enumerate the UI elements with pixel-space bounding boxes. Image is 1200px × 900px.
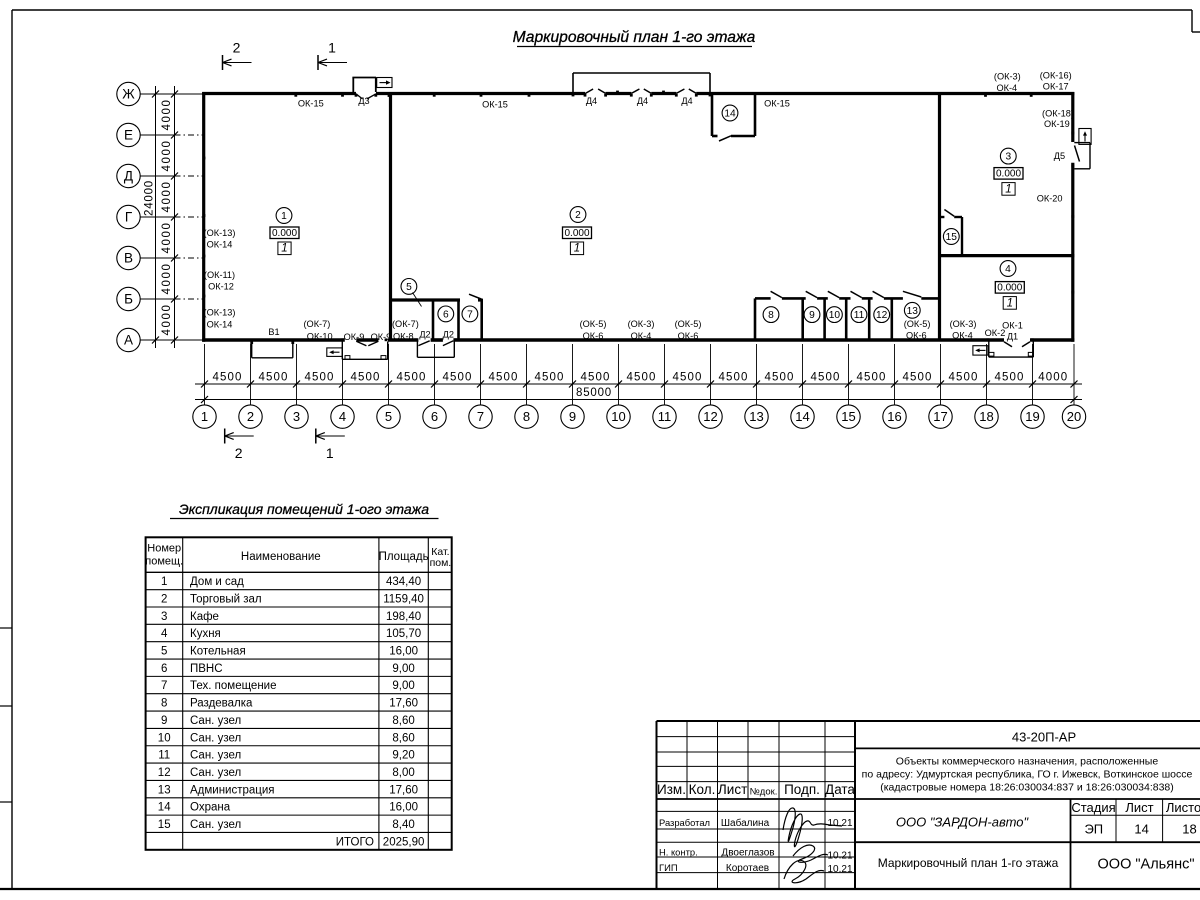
svg-text:434,40: 434,40 bbox=[386, 576, 421, 588]
svg-text:Д: Д bbox=[124, 169, 133, 184]
svg-text:4500: 4500 bbox=[903, 372, 933, 384]
svg-text:6: 6 bbox=[443, 310, 449, 321]
svg-text:(ОК-18): (ОК-18) bbox=[1042, 109, 1074, 119]
svg-text:14: 14 bbox=[1134, 821, 1148, 836]
svg-text:ОК-4: ОК-4 bbox=[952, 331, 973, 341]
svg-text:9,00: 9,00 bbox=[392, 663, 414, 675]
svg-text:ОК-15: ОК-15 bbox=[482, 100, 508, 110]
svg-text:Сан. узел: Сан. узел bbox=[190, 715, 241, 727]
svg-text:ОК-6: ОК-6 bbox=[583, 331, 604, 341]
svg-text:4: 4 bbox=[339, 409, 346, 424]
svg-text:Экспликация помещений 1-ого эт: Экспликация помещений 1-ого этажа bbox=[179, 501, 429, 517]
svg-text:14: 14 bbox=[795, 409, 809, 424]
svg-text:(ОК-16): (ОК-16) bbox=[1040, 70, 1072, 80]
svg-text:4000: 4000 bbox=[161, 99, 173, 131]
svg-text:(ОК-5): (ОК-5) bbox=[580, 319, 607, 329]
svg-text:ИТОГО: ИТОГО bbox=[336, 836, 374, 848]
svg-text:8,00: 8,00 bbox=[392, 767, 414, 779]
svg-text:Д1: Д1 bbox=[1007, 331, 1018, 341]
svg-text:16,00: 16,00 bbox=[389, 646, 418, 658]
svg-text:7: 7 bbox=[467, 310, 473, 321]
svg-text:(ОК-5): (ОК-5) bbox=[675, 319, 702, 329]
svg-text:8: 8 bbox=[768, 310, 774, 321]
svg-text:Ж: Ж bbox=[122, 87, 135, 102]
svg-text:10: 10 bbox=[611, 409, 625, 424]
svg-text:3: 3 bbox=[1005, 152, 1011, 163]
svg-text:ОК-15: ОК-15 bbox=[298, 99, 324, 109]
svg-text:3: 3 bbox=[293, 409, 300, 424]
svg-text:Сан. узел: Сан. узел bbox=[190, 732, 241, 744]
svg-text:1159,40: 1159,40 bbox=[383, 594, 424, 606]
svg-text:10: 10 bbox=[829, 310, 841, 321]
svg-text:9: 9 bbox=[569, 409, 576, 424]
svg-text:3: 3 bbox=[161, 611, 167, 623]
svg-text:14: 14 bbox=[158, 802, 171, 814]
svg-text:11: 11 bbox=[658, 409, 672, 424]
svg-text:15: 15 bbox=[841, 409, 855, 424]
svg-text:(ОК-13): (ОК-13) bbox=[204, 228, 236, 238]
svg-text:1: 1 bbox=[326, 445, 334, 461]
svg-text:10.21: 10.21 bbox=[827, 818, 852, 829]
svg-text:19: 19 bbox=[1025, 409, 1039, 424]
svg-text:12: 12 bbox=[876, 310, 888, 321]
svg-text:16: 16 bbox=[887, 409, 901, 424]
svg-text:2: 2 bbox=[247, 409, 254, 424]
svg-text:105,70: 105,70 bbox=[386, 628, 421, 640]
svg-text:Кафе: Кафе bbox=[190, 611, 219, 623]
svg-text:ЭП: ЭП bbox=[1084, 821, 1103, 836]
svg-text:4500: 4500 bbox=[535, 372, 565, 384]
svg-text:ОК-17: ОК-17 bbox=[1043, 82, 1069, 92]
svg-text:5: 5 bbox=[385, 409, 392, 424]
svg-text:4000: 4000 bbox=[161, 181, 173, 213]
svg-text:7: 7 bbox=[161, 680, 167, 692]
svg-text:4500: 4500 bbox=[627, 372, 657, 384]
svg-text:13: 13 bbox=[907, 306, 919, 317]
svg-text:Лист: Лист bbox=[718, 782, 747, 797]
svg-text:2025,90: 2025,90 bbox=[383, 836, 425, 848]
svg-text:2: 2 bbox=[575, 210, 581, 221]
svg-text:ПВНС: ПВНС bbox=[190, 663, 223, 675]
svg-text:9: 9 bbox=[809, 310, 815, 321]
svg-text:ОК-20: ОК-20 bbox=[1037, 193, 1063, 203]
svg-text:0.000: 0.000 bbox=[272, 228, 297, 239]
svg-text:Раздевалка: Раздевалка bbox=[190, 698, 253, 710]
svg-text:4500: 4500 bbox=[213, 372, 243, 384]
svg-text:0.000: 0.000 bbox=[996, 169, 1021, 180]
svg-text:24000: 24000 bbox=[144, 180, 156, 216]
svg-text:(ОК-3): (ОК-3) bbox=[950, 319, 977, 329]
svg-text:85000: 85000 bbox=[576, 387, 612, 399]
svg-text:Г: Г bbox=[125, 210, 133, 225]
svg-text:1: 1 bbox=[161, 576, 167, 588]
svg-text:9,20: 9,20 bbox=[392, 750, 414, 762]
svg-text:12: 12 bbox=[703, 409, 717, 424]
svg-text:2: 2 bbox=[161, 594, 167, 606]
svg-text:Шабалина: Шабалина bbox=[721, 817, 770, 829]
svg-text:4: 4 bbox=[161, 628, 168, 640]
svg-text:9: 9 bbox=[161, 715, 167, 727]
svg-text:4500: 4500 bbox=[397, 372, 427, 384]
svg-text:ОК-6: ОК-6 bbox=[906, 331, 927, 341]
svg-text:8,40: 8,40 bbox=[392, 819, 414, 831]
svg-text:ОК-15: ОК-15 bbox=[764, 99, 790, 109]
svg-text:ОК-12: ОК-12 bbox=[208, 282, 234, 292]
svg-text:15: 15 bbox=[946, 232, 958, 243]
svg-text:4500: 4500 bbox=[765, 372, 795, 384]
svg-text:ОК-9: ОК-9 bbox=[344, 332, 365, 342]
svg-text:Е: Е bbox=[124, 128, 133, 143]
svg-text:4500: 4500 bbox=[949, 372, 979, 384]
svg-text:9,00: 9,00 bbox=[392, 680, 414, 692]
svg-text:13: 13 bbox=[749, 409, 763, 424]
svg-text:4500: 4500 bbox=[305, 372, 335, 384]
svg-text:Котельная: Котельная bbox=[190, 646, 246, 658]
svg-text:Д4: Д4 bbox=[681, 96, 692, 106]
svg-text:ООО "Альянс": ООО "Альянс" bbox=[1098, 857, 1195, 873]
svg-text:(ОК-3): (ОК-3) bbox=[994, 72, 1021, 82]
svg-text:1: 1 bbox=[328, 40, 336, 56]
svg-text:ОК-8: ОК-8 bbox=[393, 332, 414, 342]
svg-text:1: 1 bbox=[281, 243, 287, 255]
svg-text:2: 2 bbox=[235, 445, 243, 461]
svg-text:ОК-9: ОК-9 bbox=[371, 332, 392, 342]
svg-text:4500: 4500 bbox=[719, 372, 749, 384]
svg-text:(ОК-3): (ОК-3) bbox=[628, 319, 655, 329]
svg-text:№док.: №док. bbox=[750, 787, 778, 798]
svg-text:4500: 4500 bbox=[489, 372, 519, 384]
svg-text:(ОК-11): (ОК-11) bbox=[204, 270, 235, 280]
svg-text:43-20П-АР: 43-20П-АР bbox=[1012, 730, 1076, 745]
svg-text:5: 5 bbox=[161, 646, 167, 658]
svg-text:198,40: 198,40 bbox=[386, 611, 421, 623]
svg-text:4500: 4500 bbox=[581, 372, 611, 384]
svg-text:17: 17 bbox=[933, 409, 947, 424]
svg-text:18: 18 bbox=[1182, 821, 1196, 836]
svg-text:13: 13 bbox=[158, 784, 171, 796]
svg-text:Дата: Дата bbox=[825, 782, 855, 797]
svg-text:Сан. узел: Сан. узел bbox=[190, 767, 241, 779]
svg-text:помещ.: помещ. bbox=[145, 556, 183, 568]
svg-text:1: 1 bbox=[1005, 183, 1011, 195]
svg-text:(ОК-5): (ОК-5) bbox=[904, 319, 931, 329]
svg-text:4500: 4500 bbox=[259, 372, 289, 384]
svg-text:15: 15 bbox=[158, 819, 171, 831]
svg-text:Двоеглазов: Двоеглазов bbox=[721, 848, 774, 859]
svg-text:Сан. узел: Сан. узел bbox=[190, 750, 241, 762]
svg-text:пом.: пом. bbox=[430, 557, 452, 569]
svg-text:1: 1 bbox=[574, 243, 580, 255]
svg-text:Д4: Д4 bbox=[586, 96, 597, 106]
svg-text:14: 14 bbox=[724, 109, 736, 120]
svg-text:В: В bbox=[124, 251, 133, 266]
svg-text:ООО "ЗАРДОН-авто": ООО "ЗАРДОН-авто" bbox=[896, 814, 1030, 829]
svg-text:5: 5 bbox=[406, 282, 412, 293]
svg-text:Листов: Листов bbox=[1166, 800, 1200, 815]
svg-text:8: 8 bbox=[161, 698, 167, 710]
svg-text:ОК-4: ОК-4 bbox=[996, 83, 1017, 93]
svg-text:1: 1 bbox=[1007, 297, 1013, 309]
svg-text:В1: В1 bbox=[268, 327, 279, 337]
svg-text:17,60: 17,60 bbox=[389, 698, 418, 710]
svg-text:4500: 4500 bbox=[811, 372, 841, 384]
svg-text:Д2: Д2 bbox=[443, 329, 454, 339]
svg-text:(кадастровые номера 18:26:0300: (кадастровые номера 18:26:030034:837 и 1… bbox=[880, 782, 1174, 794]
svg-text:Кухня: Кухня bbox=[190, 628, 221, 640]
svg-text:Площадь: Площадь bbox=[379, 551, 429, 563]
svg-text:6: 6 bbox=[431, 409, 438, 424]
svg-text:4000: 4000 bbox=[161, 222, 173, 254]
svg-text:Объекты коммерческого назначен: Объекты коммерческого назначения, распол… bbox=[896, 755, 1159, 767]
svg-text:12: 12 bbox=[158, 767, 171, 779]
svg-text:(ОК-7): (ОК-7) bbox=[392, 319, 419, 329]
svg-text:Номер: Номер bbox=[147, 543, 181, 555]
svg-text:18: 18 bbox=[979, 409, 993, 424]
svg-text:Маркировочный план 1-го этажа: Маркировочный план 1-го этажа bbox=[878, 856, 1059, 870]
svg-text:0.000: 0.000 bbox=[997, 283, 1022, 294]
svg-text:2: 2 bbox=[233, 40, 241, 56]
svg-text:Маркировочный план 1-го этажа: Маркировочный план 1-го этажа bbox=[513, 29, 756, 46]
svg-text:4500: 4500 bbox=[673, 372, 703, 384]
svg-text:Разработал: Разработал bbox=[659, 817, 710, 828]
svg-text:Лист: Лист bbox=[1125, 800, 1153, 815]
svg-text:Наименование: Наименование bbox=[241, 551, 321, 563]
svg-text:(ОК-13): (ОК-13) bbox=[204, 307, 236, 317]
svg-text:4000: 4000 bbox=[161, 304, 173, 336]
svg-text:1: 1 bbox=[201, 409, 208, 424]
svg-text:(ОК-7): (ОК-7) bbox=[304, 319, 331, 329]
svg-text:4: 4 bbox=[1005, 264, 1011, 275]
svg-text:ОК-14: ОК-14 bbox=[207, 320, 233, 330]
svg-text:10: 10 bbox=[158, 732, 171, 744]
svg-text:11: 11 bbox=[158, 750, 170, 762]
svg-text:Стадия: Стадия bbox=[1071, 800, 1115, 815]
svg-text:4500: 4500 bbox=[351, 372, 381, 384]
svg-text:ОК-19: ОК-19 bbox=[1044, 119, 1070, 129]
svg-text:Д2: Д2 bbox=[419, 329, 430, 339]
svg-text:11: 11 bbox=[854, 310, 865, 321]
svg-text:А: А bbox=[124, 333, 133, 348]
svg-text:ОК-10: ОК-10 bbox=[307, 332, 333, 342]
svg-text:Тех. помещение: Тех. помещение bbox=[190, 680, 277, 692]
svg-text:Дом и сад: Дом и сад bbox=[190, 576, 244, 588]
svg-text:1: 1 bbox=[281, 211, 287, 222]
svg-text:4000: 4000 bbox=[161, 263, 173, 295]
svg-text:Изм.: Изм. bbox=[657, 782, 686, 797]
svg-text:16,00: 16,00 bbox=[389, 802, 418, 814]
svg-text:Охрана: Охрана bbox=[190, 802, 231, 814]
svg-text:ОК-6: ОК-6 bbox=[678, 331, 699, 341]
svg-text:17,60: 17,60 bbox=[389, 784, 418, 796]
svg-text:Н. контр.: Н. контр. bbox=[659, 847, 698, 858]
svg-text:Торговый зал: Торговый зал bbox=[190, 594, 262, 606]
svg-text:ОК-14: ОК-14 bbox=[207, 240, 233, 250]
svg-text:20: 20 bbox=[1067, 409, 1081, 424]
svg-text:по адресу: Удмуртская республи: по адресу: Удмуртская республика, ГО г. … bbox=[862, 768, 1193, 780]
svg-text:8: 8 bbox=[523, 409, 530, 424]
svg-text:7: 7 bbox=[477, 409, 484, 424]
svg-text:6: 6 bbox=[161, 663, 167, 675]
svg-text:10.21: 10.21 bbox=[827, 850, 852, 861]
svg-text:4500: 4500 bbox=[443, 372, 473, 384]
svg-text:Администрация: Администрация bbox=[190, 784, 275, 796]
svg-text:4000: 4000 bbox=[1038, 372, 1068, 384]
svg-text:8,60: 8,60 bbox=[392, 732, 414, 744]
svg-text:0.000: 0.000 bbox=[564, 228, 589, 239]
svg-text:Коротаев: Коротаев bbox=[726, 863, 769, 874]
svg-text:4000: 4000 bbox=[161, 140, 173, 172]
svg-text:Сан. узел: Сан. узел bbox=[190, 819, 241, 831]
svg-text:ОК-4: ОК-4 bbox=[631, 331, 652, 341]
svg-text:Д4: Д4 bbox=[637, 96, 648, 106]
svg-text:Б: Б bbox=[124, 292, 133, 307]
svg-text:Д5: Д5 bbox=[1054, 151, 1065, 161]
svg-text:Д3: Д3 bbox=[358, 96, 369, 106]
svg-text:Кол.: Кол. bbox=[689, 782, 716, 797]
svg-text:4500: 4500 bbox=[857, 372, 887, 384]
svg-text:10.21: 10.21 bbox=[827, 864, 852, 875]
svg-text:Подп.: Подп. bbox=[784, 782, 820, 797]
svg-text:ОК-1: ОК-1 bbox=[1002, 321, 1023, 331]
svg-text:4500: 4500 bbox=[995, 372, 1025, 384]
svg-text:8,60: 8,60 bbox=[392, 715, 414, 727]
svg-text:ГИП: ГИП bbox=[659, 862, 678, 873]
